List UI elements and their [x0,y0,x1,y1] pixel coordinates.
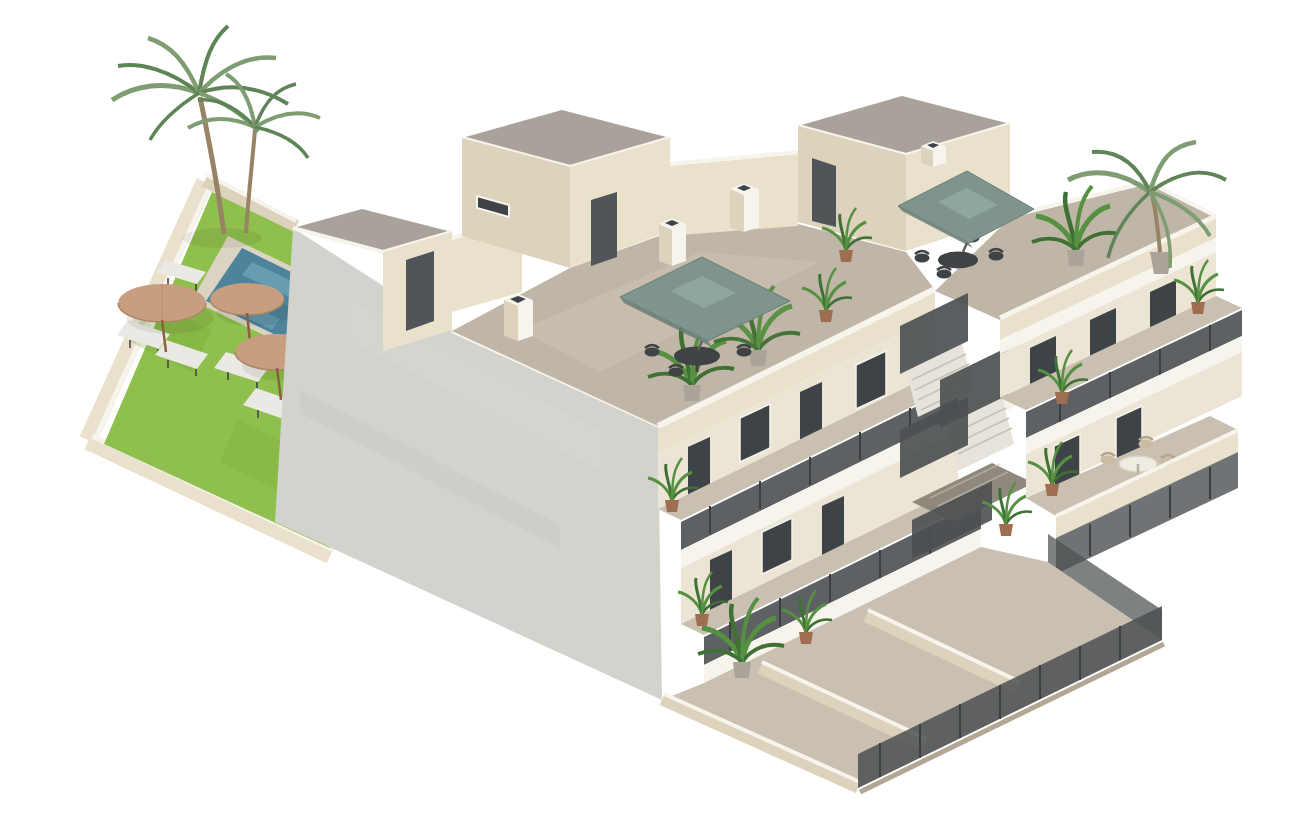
chimney [504,294,533,341]
render-canvas: Isometric 3D render — new-build apartmen… [0,0,1290,840]
chimney [921,141,946,167]
penthouse-door [406,251,434,331]
isometric-render: Isometric 3D render — new-build apartmen… [0,0,1290,840]
chimney [659,218,686,266]
chair [915,251,930,263]
chimney [730,183,759,232]
dining-table [938,252,978,269]
chair [937,267,952,279]
penthouse-door [812,158,836,227]
penthouse-door [591,192,617,266]
